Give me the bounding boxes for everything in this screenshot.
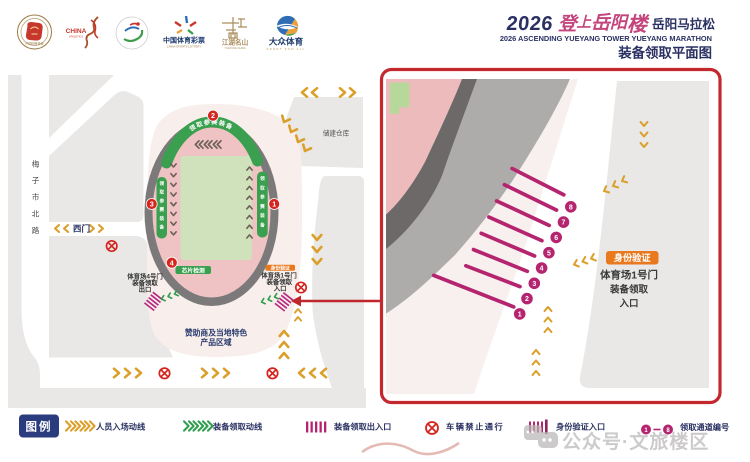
svg-text:装备领取平面图: 装备领取平面图 <box>617 45 712 61</box>
svg-text:YUEYANG CHINA: YUEYANG CHINA <box>224 46 246 50</box>
svg-text:CHINA SPORTS LOTTERY: CHINA SPORTS LOTTERY <box>167 45 202 49</box>
svg-text:图例: 图例 <box>26 420 53 434</box>
svg-text:储建仓库: 储建仓库 <box>323 129 350 138</box>
svg-text:2026: 2026 <box>505 13 554 35</box>
svg-text:1: 1 <box>518 312 522 319</box>
svg-text:芯片检测: 芯片检测 <box>182 266 205 274</box>
svg-text:3: 3 <box>150 200 154 209</box>
svg-text:中国田径协会: 中国田径协会 <box>25 41 43 46</box>
svg-text:身份验证入口: 身份验证入口 <box>556 422 605 432</box>
svg-text:ATHLETICS: ATHLETICS <box>69 35 83 39</box>
svg-text:2: 2 <box>211 111 215 120</box>
svg-text:装备领取: 装备领取 <box>609 284 649 296</box>
svg-text:3: 3 <box>532 281 536 288</box>
svg-text:8: 8 <box>569 204 573 211</box>
svg-text:中国体育彩票: 中国体育彩票 <box>163 36 205 45</box>
svg-text:装备领取出入口: 装备领取出入口 <box>333 422 391 432</box>
svg-text:身份验证: 身份验证 <box>614 252 652 263</box>
svg-text:领取通道编号: 领取通道编号 <box>680 422 729 432</box>
svg-text:大众体育: 大众体育 <box>269 36 304 47</box>
svg-text:4: 4 <box>540 266 544 273</box>
svg-text:西门: 西门 <box>73 223 91 234</box>
svg-text:2: 2 <box>525 296 529 303</box>
svg-text:公众号·文旅楼区: 公众号·文旅楼区 <box>562 430 709 453</box>
svg-text:6: 6 <box>554 235 558 242</box>
svg-text:岳阳马拉松: 岳阳马拉松 <box>652 17 715 32</box>
svg-text:4: 4 <box>170 258 174 267</box>
svg-text:身份验证: 身份验证 <box>270 265 290 272</box>
svg-text:登上岳阳楼: 登上岳阳楼 <box>558 12 650 36</box>
svg-text:CHINA: CHINA <box>66 28 87 35</box>
svg-text:人员入场动线: 人员入场动线 <box>96 422 146 432</box>
svg-text:入口: 入口 <box>618 298 638 309</box>
svg-text:装备领取动线: 装备领取动线 <box>212 422 263 432</box>
svg-text:7: 7 <box>562 220 566 227</box>
svg-text:SPORT FOR ALL: SPORT FOR ALL <box>267 47 306 51</box>
svg-text:体育场1号门: 体育场1号门 <box>600 269 658 282</box>
svg-text:2026 ASCENDING YUEYANG TOWER: 2026 ASCENDING YUEYANG TOWER YUEYANG MAR… <box>500 34 712 43</box>
svg-text:1: 1 <box>272 200 276 209</box>
svg-text:5: 5 <box>547 250 551 257</box>
svg-text:江湖名山: 江湖名山 <box>222 38 249 47</box>
svg-text:车辆禁止通行: 车辆禁止通行 <box>446 422 504 432</box>
